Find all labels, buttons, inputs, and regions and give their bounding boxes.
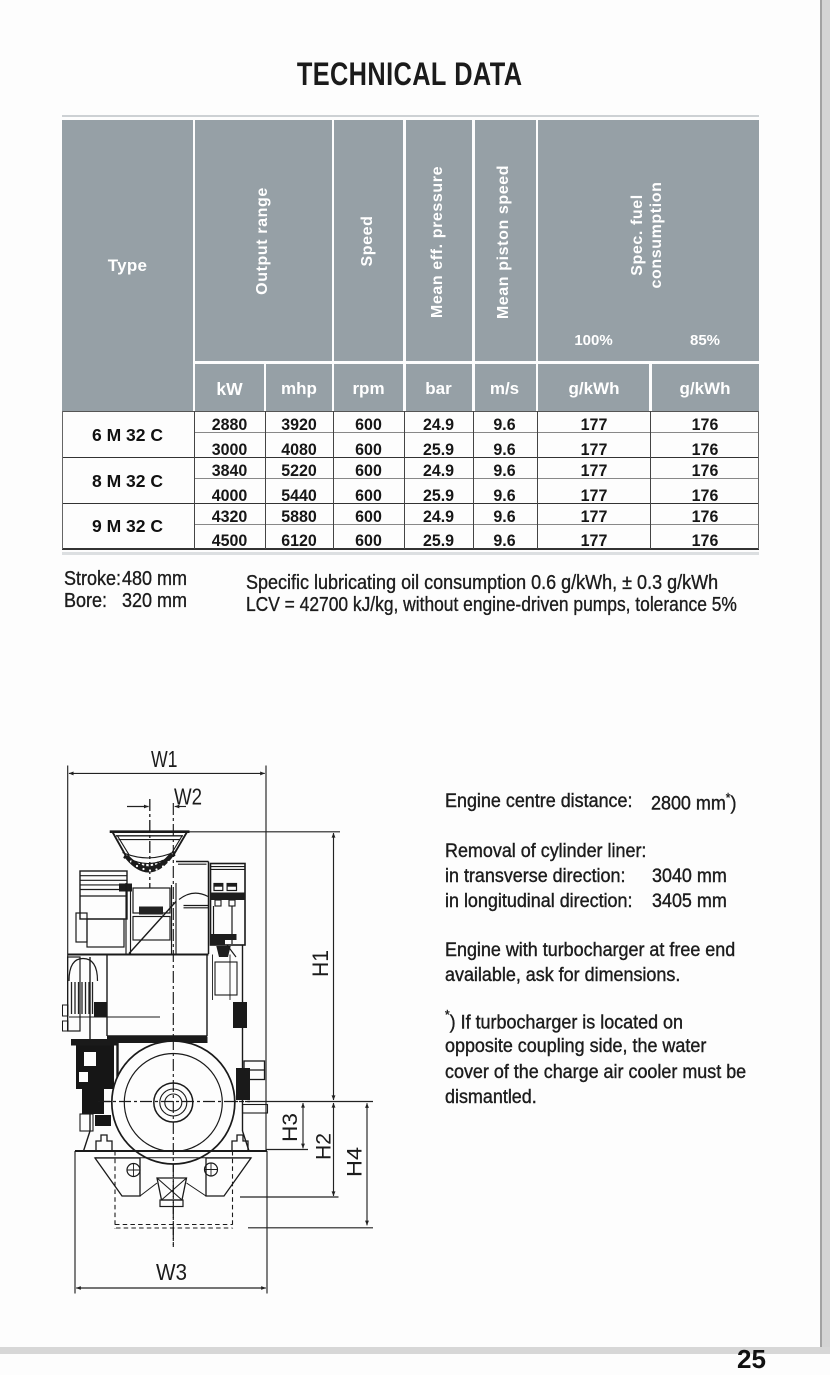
svg-text:H4: H4 bbox=[344, 1147, 367, 1177]
svg-text:W1: W1 bbox=[151, 746, 178, 772]
svg-text:W2: W2 bbox=[174, 784, 202, 810]
svg-text:H1: H1 bbox=[308, 950, 333, 977]
svg-text:H2: H2 bbox=[313, 1133, 336, 1160]
svg-text:W3: W3 bbox=[156, 1259, 187, 1285]
svg-text:H3: H3 bbox=[279, 1113, 302, 1142]
